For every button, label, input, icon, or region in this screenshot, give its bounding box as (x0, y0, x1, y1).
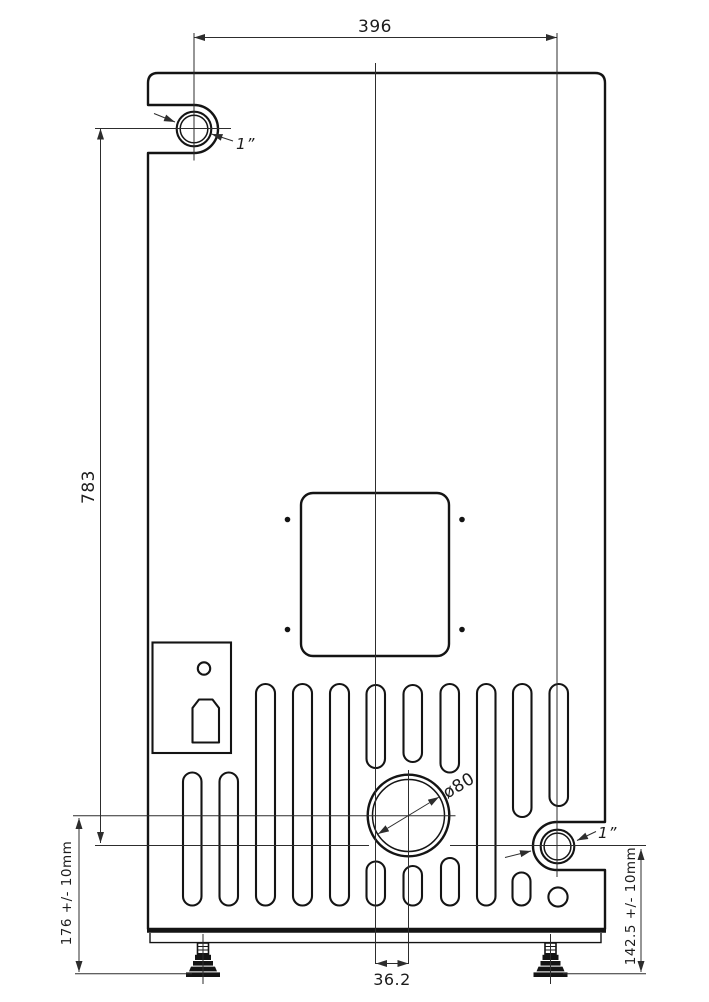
vent-slot (404, 866, 423, 906)
cable-gland-hole (198, 662, 210, 674)
dimension-flue-offset: 36.2 (373, 964, 411, 990)
dimension-flue-center-height: 176 +/- 10mm (59, 818, 79, 972)
dimension-label-pipe-height: 142.5 +/- 10mm (623, 847, 639, 965)
electrical-panel-cutout (153, 643, 232, 754)
drawing-sheet: 396 783 176 +/- 10mm 142.5 +/- 10mm 36.2… (0, 0, 709, 1002)
vent-slot (404, 685, 423, 762)
callout-label-top-pipe: 1” (236, 135, 255, 153)
dimension-pipe-vertical-span: 783 (79, 129, 101, 844)
vent-slot (330, 684, 349, 906)
vent-slot (513, 873, 531, 906)
dimension-label-flue-height: 176 +/- 10mm (59, 841, 75, 946)
screw-hole (285, 517, 291, 523)
dimension-label-vertical-span: 783 (79, 470, 99, 504)
vent-slot (256, 684, 275, 906)
vent-slot (513, 684, 532, 817)
screw-hole (459, 627, 465, 633)
dimension-label-top-span: 396 (358, 17, 392, 37)
vent-slot (183, 773, 202, 906)
technical-drawing-canvas: 396 783 176 +/- 10mm 142.5 +/- 10mm 36.2… (0, 0, 709, 1002)
power-switch-cutout (193, 700, 220, 743)
round-vent-hole (548, 887, 567, 906)
dimension-label-flue-offset: 36.2 (373, 970, 411, 989)
screw-hole (459, 517, 465, 523)
vent-slot (477, 684, 496, 906)
dimension-pipe-center-height: 142.5 +/- 10mm (623, 847, 641, 972)
vent-slot (220, 773, 239, 906)
vent-slot (293, 684, 312, 906)
callout-label-bottom-pipe: 1” (598, 824, 617, 842)
screw-hole (285, 627, 291, 633)
dimension-top-pipe-span: 396 (194, 17, 557, 38)
vent-slot (550, 684, 569, 806)
vent-slot (441, 858, 459, 906)
service-panel (285, 493, 465, 656)
vent-slot (441, 684, 460, 773)
